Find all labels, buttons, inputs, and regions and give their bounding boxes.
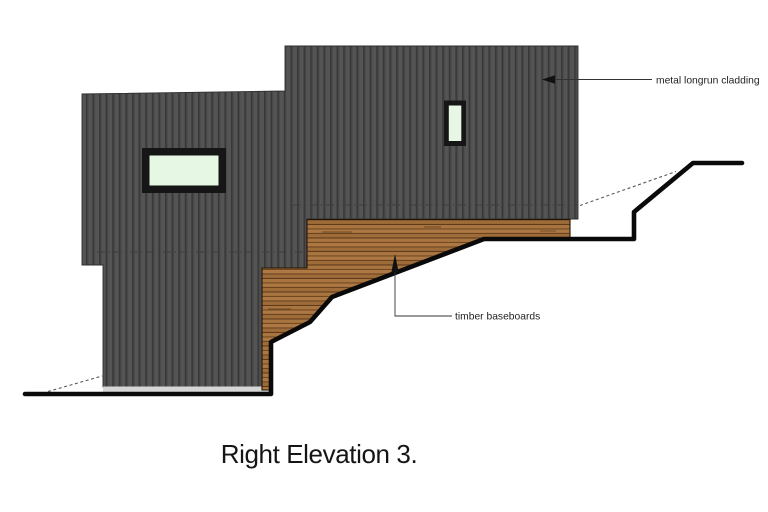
plinth-strip [103,387,272,393]
elevation-drawing-page: metal longrun cladding timber baseboards… [0,0,768,512]
right-window [444,101,466,147]
elevation-drawing: metal longrun cladding timber baseboards… [0,0,768,512]
left-window-glass [150,156,219,186]
right-window-glass [449,106,462,142]
cladding-annotation-label: metal longrun cladding [656,76,760,87]
drawing-title: Right Elevation 3. [221,439,418,469]
baseboards-annotation-label: timber baseboards [455,312,540,323]
left-window [142,148,226,193]
